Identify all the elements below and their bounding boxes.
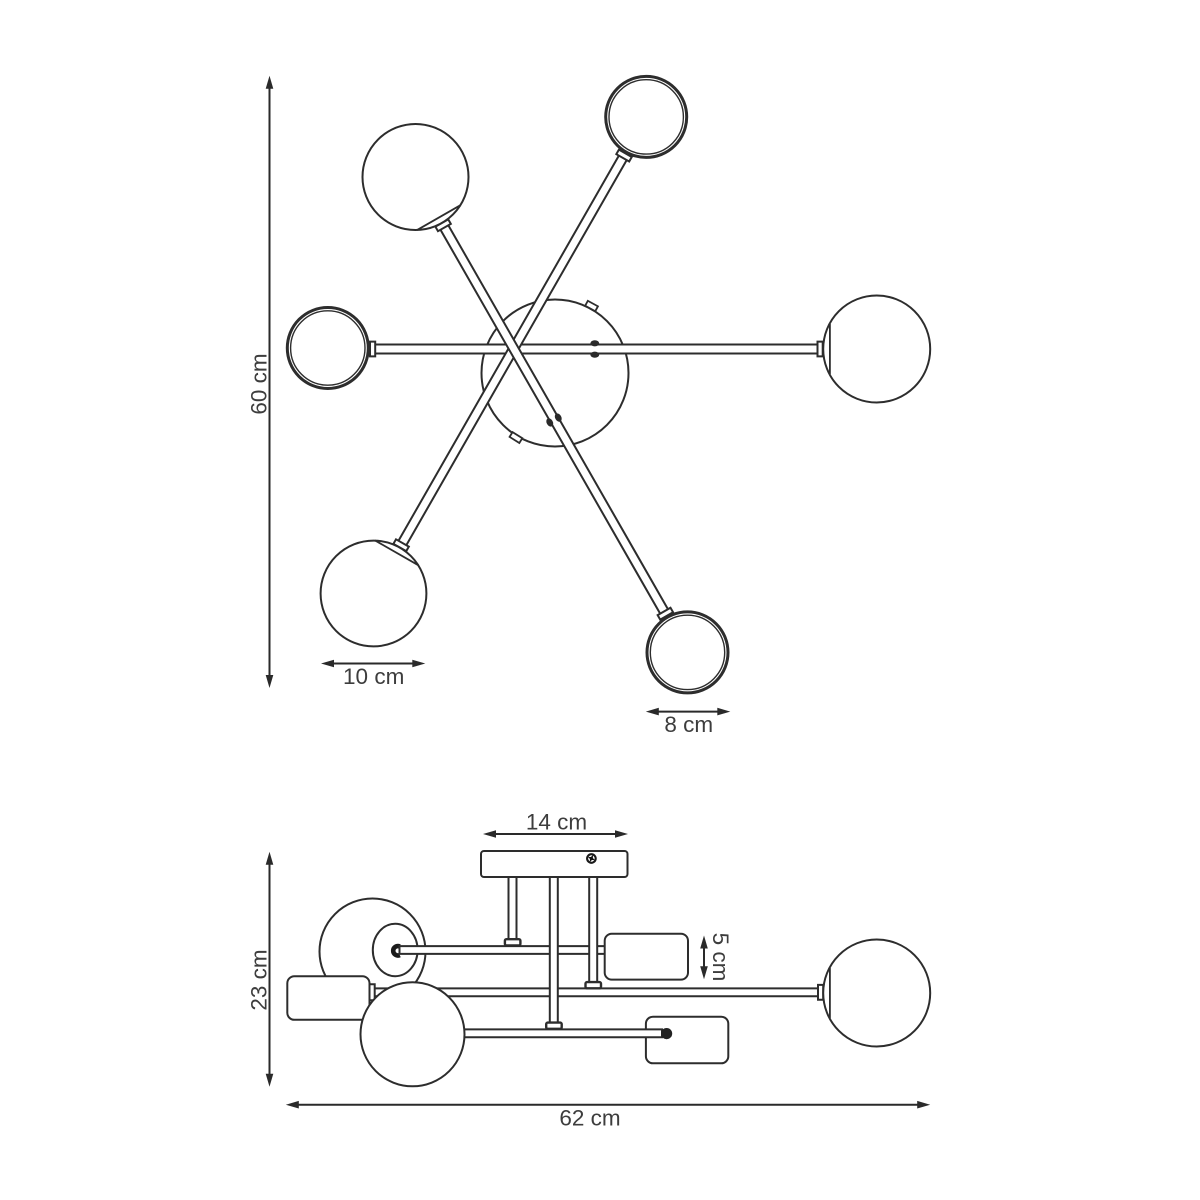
svg-text:8 cm: 8 cm [664,712,713,737]
svg-text:10 cm: 10 cm [343,664,404,689]
svg-text:23 cm: 23 cm [247,949,272,1010]
svg-text:62 cm: 62 cm [559,1106,620,1131]
svg-text:60 cm: 60 cm [247,353,272,414]
svg-text:5 cm: 5 cm [708,933,733,982]
svg-text:14 cm: 14 cm [526,810,587,835]
